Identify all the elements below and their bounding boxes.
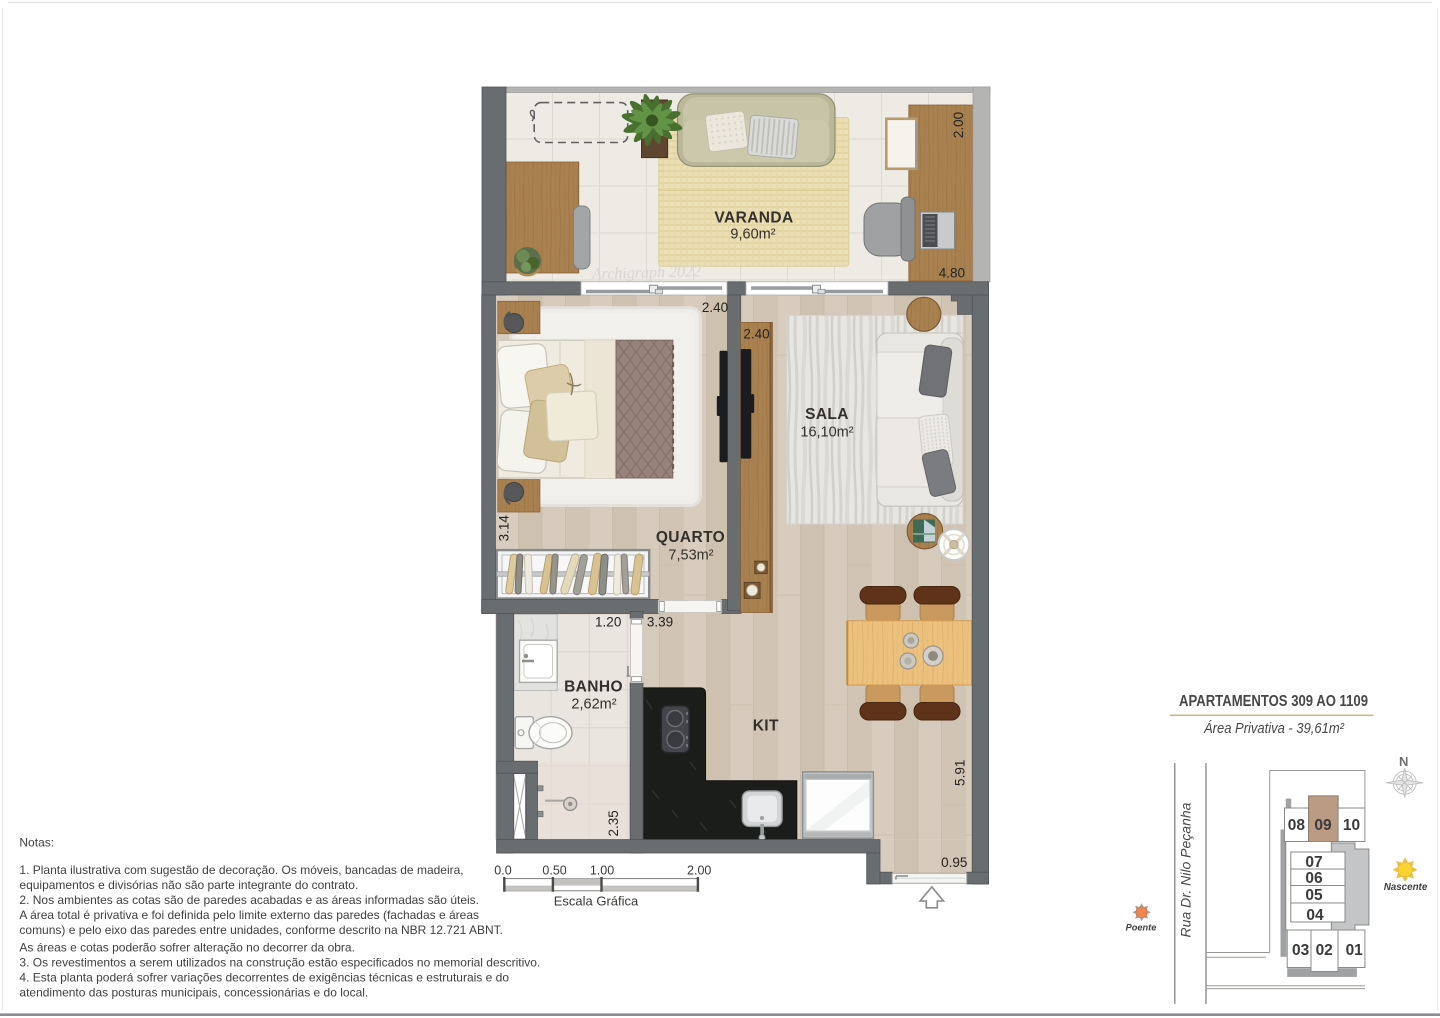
svg-text:2.35: 2.35 <box>606 810 621 836</box>
svg-text:2.40: 2.40 <box>743 327 769 342</box>
svg-text:4.80: 4.80 <box>939 266 965 281</box>
svg-text:02: 02 <box>1316 942 1333 959</box>
svg-text:03: 03 <box>1292 942 1310 959</box>
svg-text:7,53m²: 7,53m² <box>668 548 713 564</box>
svg-text:0.0: 0.0 <box>494 863 511 877</box>
svg-text:1.00: 1.00 <box>590 863 614 877</box>
svg-text:As áreas e cotas poderão sofre: As áreas e cotas poderão sofrer alteraçã… <box>19 941 355 955</box>
svg-text:A área total é privativa e foi: A área total é privativa e foi definida … <box>19 908 479 922</box>
svg-text:2.40: 2.40 <box>702 300 728 315</box>
svg-text:5.91: 5.91 <box>953 760 968 786</box>
svg-text:01: 01 <box>1346 942 1364 959</box>
svg-text:Rua Dr. Nilo Peçanha: Rua Dr. Nilo Peçanha <box>1178 802 1194 937</box>
svg-text:16,10m²: 16,10m² <box>800 425 853 441</box>
svg-text:2.00: 2.00 <box>951 112 966 138</box>
svg-text:9,60m²: 9,60m² <box>730 227 775 243</box>
svg-text:05: 05 <box>1305 887 1323 904</box>
svg-text:3.39: 3.39 <box>647 615 673 630</box>
svg-text:N: N <box>1399 754 1408 769</box>
svg-text:0.95: 0.95 <box>941 855 967 870</box>
svg-text:2. Nos ambientes as cotas são: 2. Nos ambientes as cotas são de paredes… <box>19 893 479 907</box>
svg-text:VARANDA: VARANDA <box>714 210 793 227</box>
svg-text:08: 08 <box>1288 817 1306 834</box>
svg-text:0.50: 0.50 <box>542 863 566 877</box>
svg-text:3.14: 3.14 <box>496 515 511 542</box>
svg-text:Archigraph 2022: Archigraph 2022 <box>591 263 702 283</box>
svg-text:1. Planta ilustrativa com suge: 1. Planta ilustrativa com sugestão de de… <box>19 863 463 877</box>
svg-text:Nascente: Nascente <box>1384 882 1428 893</box>
svg-text:SALA: SALA <box>805 406 849 423</box>
svg-text:Escala Gráfica: Escala Gráfica <box>554 894 639 909</box>
svg-text:QUARTO: QUARTO <box>656 529 725 546</box>
svg-text:09: 09 <box>1314 817 1332 834</box>
svg-text:10: 10 <box>1343 817 1360 834</box>
svg-text:atendimento das posturas munic: atendimento das posturas municipais, con… <box>19 986 368 1000</box>
svg-text:Área Privativa - 39,61m²: Área Privativa - 39,61m² <box>1203 720 1345 737</box>
svg-text:2,62m²: 2,62m² <box>571 697 616 713</box>
svg-text:Notas:: Notas: <box>19 836 54 850</box>
svg-text:07: 07 <box>1305 854 1322 871</box>
svg-text:1.20: 1.20 <box>595 615 621 630</box>
svg-text:4. Esta planta poderá sofrer v: 4. Esta planta poderá sofrer variações d… <box>19 971 509 985</box>
svg-text:2.00: 2.00 <box>687 863 711 877</box>
svg-text:KIT: KIT <box>753 718 779 735</box>
svg-text:comuns) e pelo eixo das parede: comuns) e pelo eixo das paredes entre un… <box>19 923 503 937</box>
svg-text:3. Os revestimentos a serem ut: 3. Os revestimentos a serem utilizados n… <box>19 956 540 970</box>
svg-text:Poente: Poente <box>1126 923 1157 933</box>
svg-text:BANHO: BANHO <box>564 679 623 696</box>
svg-text:APARTAMENTOS 309 AO 1109: APARTAMENTOS 309 AO 1109 <box>1179 693 1368 710</box>
svg-text:06: 06 <box>1305 870 1323 887</box>
svg-text:equipamentos e divisórias não: equipamentos e divisórias não são parte … <box>19 878 358 892</box>
svg-text:04: 04 <box>1306 907 1324 924</box>
